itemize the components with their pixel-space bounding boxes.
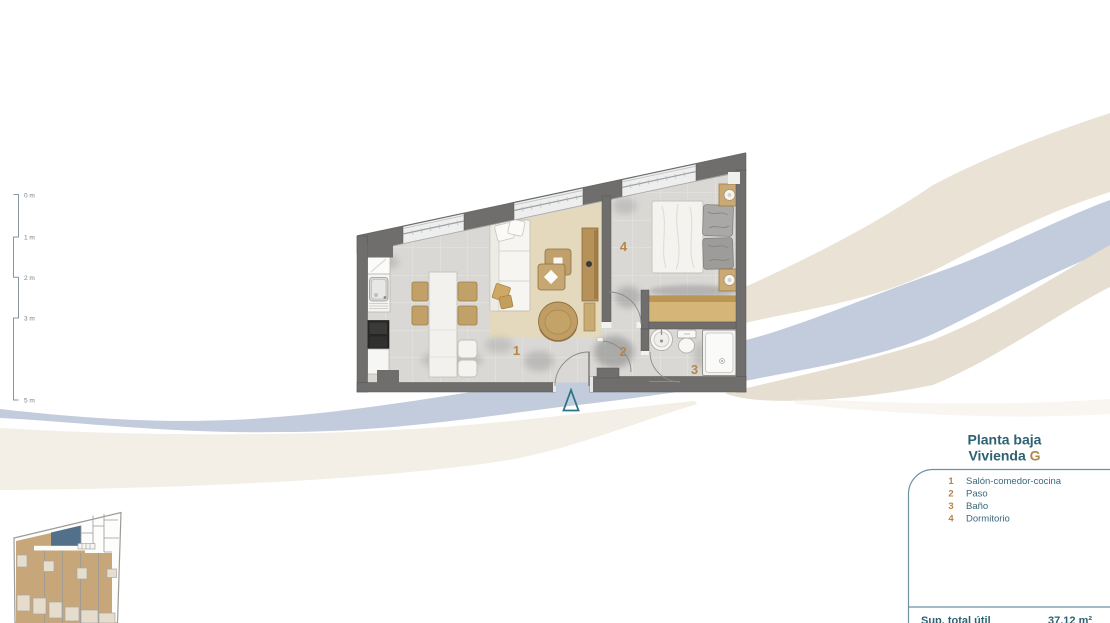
svg-text:Planta baja: Planta baja [968,432,1042,448]
svg-text:Salón-comedor-cocina: Salón-comedor-cocina [966,476,1062,487]
svg-text:1: 1 [513,343,520,358]
svg-text:2 m: 2 m [24,275,35,282]
svg-text:Sup. total útil: Sup. total útil [921,615,991,623]
svg-text:3: 3 [948,501,953,512]
svg-text:Baño: Baño [966,501,988,512]
svg-text:3 m: 3 m [24,316,35,323]
svg-text:Vivienda G: Vivienda G [968,448,1040,464]
svg-text:3: 3 [691,362,698,377]
svg-text:5 m: 5 m [24,398,35,405]
svg-text:4: 4 [620,239,628,254]
svg-text:2: 2 [948,489,953,500]
svg-text:Paso: Paso [966,489,988,500]
svg-text:0 m: 0 m [24,193,35,200]
svg-text:37.12 m²: 37.12 m² [1048,615,1092,623]
svg-text:1 m: 1 m [24,235,35,242]
svg-text:Dormitorio: Dormitorio [966,514,1010,525]
svg-text:4: 4 [948,514,954,525]
svg-text:2: 2 [619,344,626,359]
svg-text:1: 1 [948,476,954,487]
